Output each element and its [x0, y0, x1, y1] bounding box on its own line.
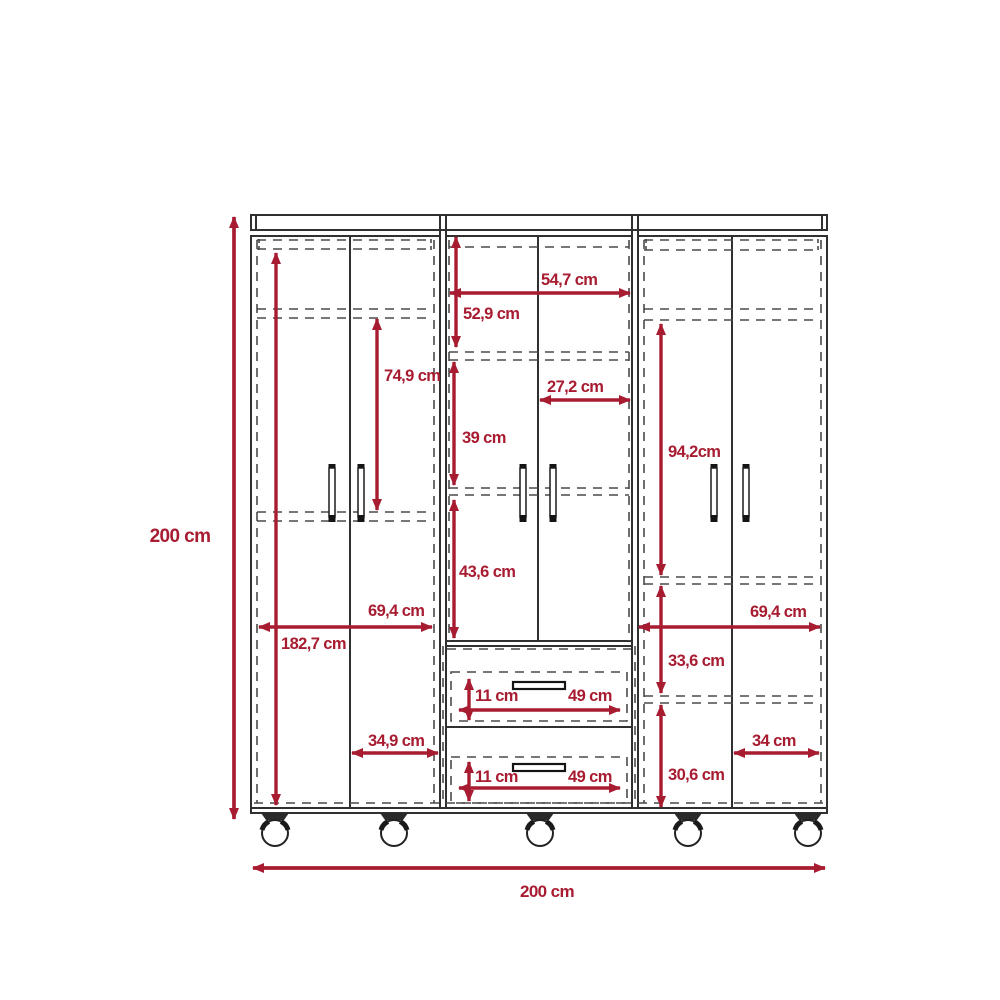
door-handle — [743, 464, 750, 522]
caster-wheel — [526, 813, 554, 846]
dim-label-right-doors-width: 69,4 cm — [750, 603, 806, 621]
center-door-right — [538, 236, 632, 641]
wardrobe-diagram-svg: 200 cm 200 cm 182,7 cm 74,9 cm 69,4 cm 3… — [0, 0, 1000, 1000]
dim-label-center-lower-height: 43,6 cm — [459, 563, 515, 581]
dim-label-center-middle-height: 39 cm — [462, 429, 506, 447]
casters — [261, 813, 822, 846]
dim-label-overall-height: 200 cm — [150, 526, 211, 547]
door-handle — [711, 464, 718, 522]
dim-label-overall-width: 200 cm — [520, 882, 575, 901]
dim-label-left-doors-width: 69,4 cm — [368, 602, 424, 620]
dim-label-right-door-width: 34 cm — [752, 732, 796, 750]
door-handle — [520, 464, 527, 522]
base-panel — [251, 808, 827, 813]
dim-label-drawer-bottom-height: 11 cm — [475, 768, 518, 786]
door-handle — [358, 464, 365, 522]
drawer-handle-top — [513, 682, 565, 689]
door-handle — [329, 464, 336, 522]
caster-wheel — [674, 813, 702, 846]
dim-label-drawer-top-width: 49 cm — [568, 687, 612, 705]
dim-label-right-hanging-height: 94,2cm — [668, 443, 720, 461]
dim-label-interior-height: 182,7 cm — [281, 635, 346, 653]
dim-label-center-top-width: 54,7 cm — [541, 271, 597, 289]
dim-label-right-lower-gap: 30,6 cm — [668, 766, 724, 784]
dim-label-center-top-height: 52,9 cm — [463, 305, 519, 323]
dim-label-drawer-bottom-width: 49 cm — [568, 768, 612, 786]
dim-label-drawer-top-height: 11 cm — [475, 687, 518, 705]
dim-label-center-door-width: 27,2 cm — [547, 378, 603, 396]
door-handle — [550, 464, 557, 522]
drawer-handle-bottom — [513, 764, 565, 771]
wardrobe-structure — [251, 215, 827, 813]
right-door-left — [638, 236, 732, 808]
dimension-diagram: 200 cm 200 cm 182,7 cm 74,9 cm 69,4 cm 3… — [0, 0, 1000, 1000]
caster-wheel — [794, 813, 822, 846]
dim-label-right-upper-gap: 33,6 cm — [668, 652, 724, 670]
caster-wheel — [380, 813, 408, 846]
dim-label-left-upper-section: 74,9 cm — [384, 367, 440, 385]
dim-label-left-door-width: 34,9 cm — [368, 732, 424, 750]
caster-wheel — [261, 813, 289, 846]
crown-top-panel — [251, 215, 827, 230]
